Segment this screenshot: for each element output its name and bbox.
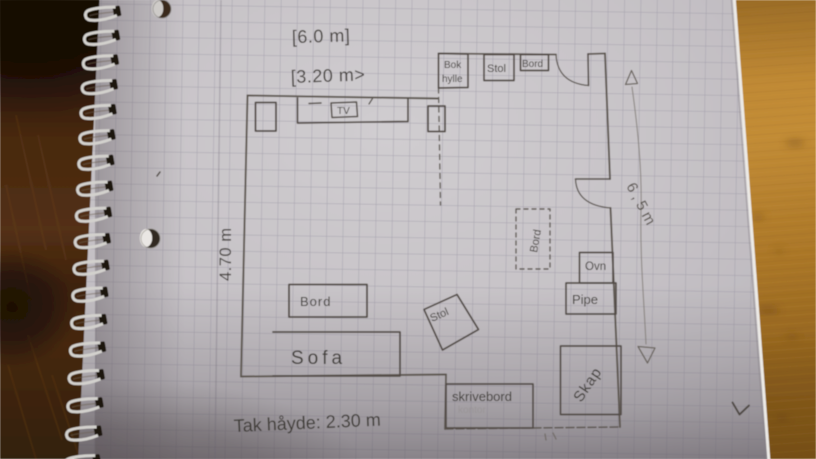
svg-text:[3.20 m>: [3.20 m> [290, 64, 365, 87]
svg-text:Bord: Bord [522, 59, 543, 70]
svg-text:[6.0 m]: [6.0 m] [292, 25, 351, 47]
svg-text:skrivebord: skrivebord [452, 389, 512, 404]
svg-text:Ovn: Ovn [585, 261, 606, 273]
svg-text:4.70 m: 4.70 m [217, 228, 235, 281]
svg-text:Bord: Bord [300, 294, 331, 309]
svg-text:kontor: kontor [458, 405, 486, 416]
svg-text:TV: TV [337, 106, 350, 117]
svg-text:hylle: hylle [442, 74, 463, 85]
svg-text:Pipe: Pipe [572, 292, 598, 307]
svg-text:Bok: Bok [444, 60, 462, 71]
svg-text:Sofa: Sofa [291, 348, 346, 369]
svg-text:Stol: Stol [487, 63, 506, 75]
